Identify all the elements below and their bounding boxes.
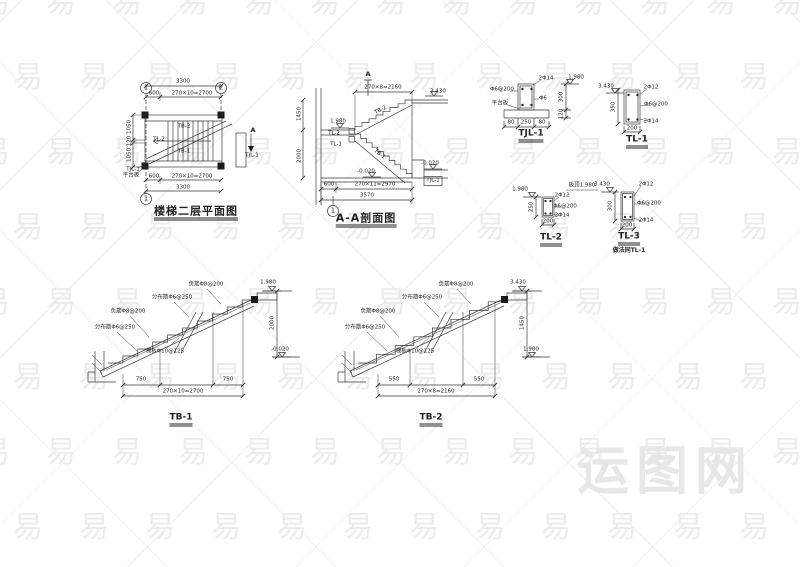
annotation-label: 3.430	[430, 89, 446, 95]
annotation-label: Φ6@200	[490, 87, 514, 93]
annotation-label: 1050	[127, 148, 133, 162]
annotation-label: 分布筋Φ6@250	[95, 325, 135, 331]
annotation-label: 3300	[176, 185, 190, 191]
annotation-label: 负筋Φ8@200	[439, 282, 474, 288]
annotation-label: A	[365, 71, 370, 78]
annotation-label: 3.430	[594, 182, 610, 188]
annotation-label: 1050	[127, 120, 133, 134]
annotation-label: 600	[149, 91, 160, 97]
annotation-label: -0.020	[421, 161, 439, 167]
annotation-label: 2000	[270, 316, 276, 330]
annotation-label: 分布筋Φ6@250	[402, 295, 442, 301]
annotation-label: 1.980	[512, 187, 528, 193]
annotation-label: A	[250, 127, 255, 134]
annotation-label: 梯板Φ10@125	[146, 349, 184, 355]
annotation-label: -0.020	[357, 169, 375, 175]
annotation-label: TL-2	[328, 131, 340, 137]
drawing-title: TB-1	[170, 414, 193, 427]
annotation-label: Φ6	[539, 96, 547, 102]
annotation-label: 270×11=2970	[355, 182, 396, 188]
annotation-label: TB-2	[374, 106, 388, 117]
annotation-label: 3570	[360, 193, 374, 199]
annotation-label: 平台板	[123, 173, 140, 179]
annotation-label: 120	[559, 109, 565, 120]
annotation-label: 2Φ14	[639, 218, 654, 224]
annotation-label: TB-1	[178, 149, 191, 155]
drawing-title: A-A剖面图	[336, 213, 397, 228]
annotation-label: 3.430	[598, 84, 614, 90]
annotation-label: 2	[219, 85, 223, 92]
annotation-label: 2Φ14	[644, 119, 659, 125]
annotation-label: 200	[622, 223, 633, 229]
annotation-label: 250	[521, 120, 532, 126]
annotation-label: 3.430	[510, 280, 526, 286]
annotation-label: 1450	[297, 107, 303, 121]
annotation-label: Φ6@200	[637, 201, 661, 207]
annotation-label: 600	[149, 174, 160, 180]
annotation-label: 梯板Φ10@125	[396, 349, 434, 355]
annotation-label: 600	[324, 182, 335, 188]
annotation-label: 负筋Φ8@200	[189, 282, 224, 288]
annotation-label: 2Φ12	[555, 193, 570, 199]
annotation-label: 270×8=2160	[417, 389, 454, 395]
annotation-label: 200	[627, 126, 638, 132]
drawing-title: 楼梯二层平面图	[154, 206, 238, 221]
annotation-label: 2Φ14	[555, 213, 570, 219]
annotation-label: 270×8=2160	[364, 85, 401, 91]
annotation-label: 550	[474, 377, 485, 383]
annotation-label: 1.980	[330, 119, 346, 125]
annotation-label: TL-2	[153, 137, 165, 143]
annotation-label: 80	[508, 120, 515, 126]
cad-drawing-page: 易易易易易易易易易易易易易易易易易易易易易易易易易易易易易易易易易易易易易易易易…	[0, 0, 800, 567]
annotation-label: 1.980	[568, 75, 584, 81]
drawing-title: TL-1	[626, 136, 648, 149]
annotation-label: 板顶1.980	[569, 183, 596, 189]
annotation-label: 负筋Φ8@200	[361, 309, 396, 315]
annotation-label: 1.980	[523, 347, 539, 353]
annotation-label: 750	[136, 377, 147, 383]
drawing-title: TL-2	[540, 234, 562, 247]
annotation-label: 300	[608, 201, 614, 212]
annotation-label: TJL-1	[245, 153, 258, 159]
annotation-label: 270×10=2700	[172, 174, 213, 180]
drawing-title: TL-3	[618, 233, 640, 246]
annotation-label: 2000	[297, 149, 303, 163]
annotation-label: 1	[331, 208, 335, 215]
annotation-label: 270×10=2700	[163, 389, 204, 395]
annotation-label: 300	[559, 92, 565, 103]
annotation-label: Φ6@200	[644, 102, 668, 108]
annotation-label: 平台板	[492, 101, 509, 107]
annotation-label: 2Φ12	[644, 85, 659, 91]
annotation-label: 80	[539, 120, 546, 126]
annotation-label: 2Φ12	[639, 182, 654, 188]
drawing-title: TJL-1	[518, 130, 543, 143]
annotation-label: 200	[543, 219, 554, 225]
annotation-label: 做法同TL-1	[613, 248, 646, 254]
annotation-label: 1.980	[260, 280, 276, 286]
annotation-label: 270×10=2700	[172, 91, 213, 97]
annotation-label: 分布筋Φ6@250	[345, 325, 385, 331]
annotation-label: 350	[611, 102, 617, 113]
annotation-label: -0.020	[271, 347, 289, 353]
annotation-label: 550	[389, 377, 400, 383]
annotation-label: TB-2	[178, 124, 191, 130]
annotation-label: 1450	[520, 316, 526, 330]
annotation-label: Φ6@200	[553, 204, 577, 210]
annotation-label: 120	[127, 136, 133, 147]
annotation-layer: 1213300600270×10=2700600270×10=270033001…	[0, 0, 800, 567]
annotation-label: 1	[144, 85, 148, 92]
annotation-label: 负筋Φ8@200	[111, 309, 146, 315]
annotation-label: TJL-1	[426, 178, 439, 184]
annotation-label: 3300	[176, 79, 190, 85]
annotation-label: TL-1	[330, 142, 342, 148]
annotation-label: 分布筋Φ6@250	[152, 295, 192, 301]
annotation-label: 2Φ14	[539, 76, 554, 82]
annotation-label: 250	[529, 202, 535, 213]
drawing-title: TB-2	[420, 414, 443, 427]
annotation-label: 750	[223, 377, 234, 383]
annotation-label: TB-1	[372, 149, 385, 161]
annotation-label: 1	[144, 196, 148, 203]
